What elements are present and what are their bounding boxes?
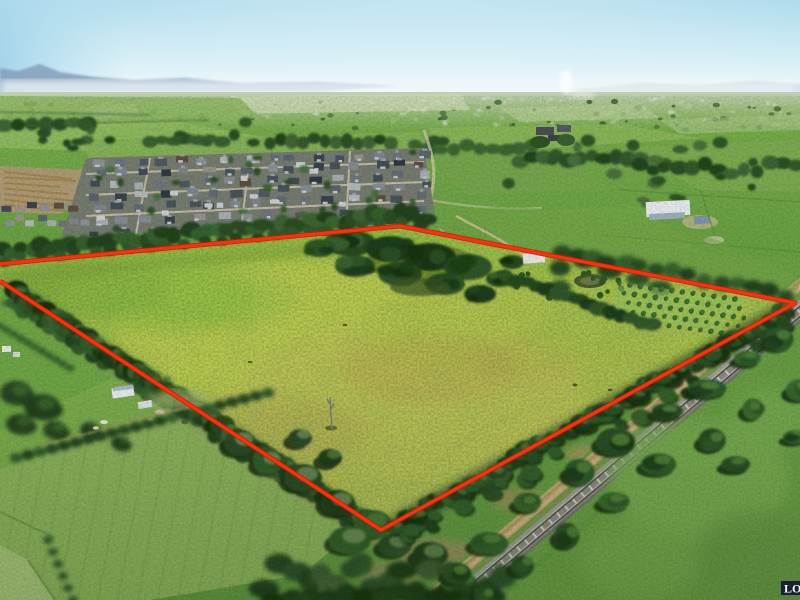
svg-text:LO: LO [784, 582, 800, 596]
